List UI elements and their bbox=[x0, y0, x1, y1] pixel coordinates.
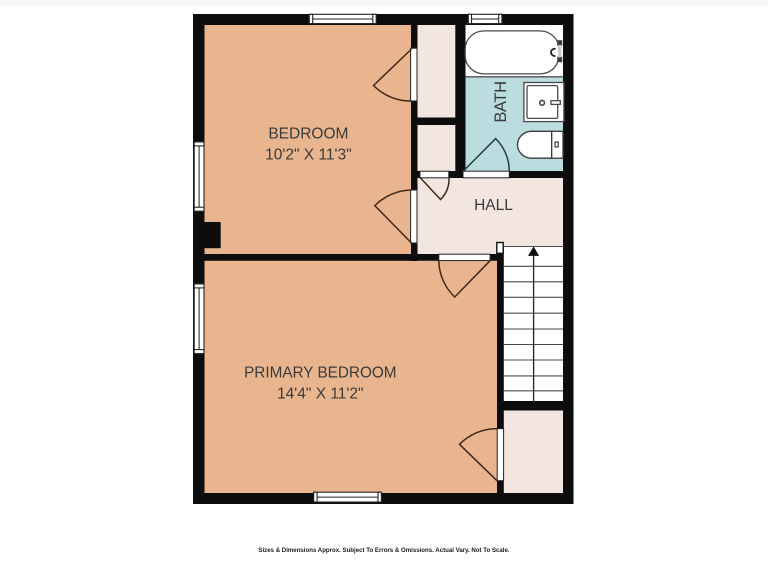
svg-text:BATH: BATH bbox=[492, 81, 510, 122]
svg-text:14'4" X 11'2": 14'4" X 11'2" bbox=[277, 386, 363, 403]
svg-text:10'2" X 11'3": 10'2" X 11'3" bbox=[265, 146, 351, 163]
svg-text:Sizes & Dimensions Approx. Sub: Sizes & Dimensions Approx. Subject To Er… bbox=[258, 547, 509, 554]
svg-text:BEDROOM: BEDROOM bbox=[268, 126, 348, 143]
svg-text:HALL: HALL bbox=[474, 197, 513, 214]
svg-text:PRIMARY BEDROOM: PRIMARY BEDROOM bbox=[244, 364, 396, 381]
